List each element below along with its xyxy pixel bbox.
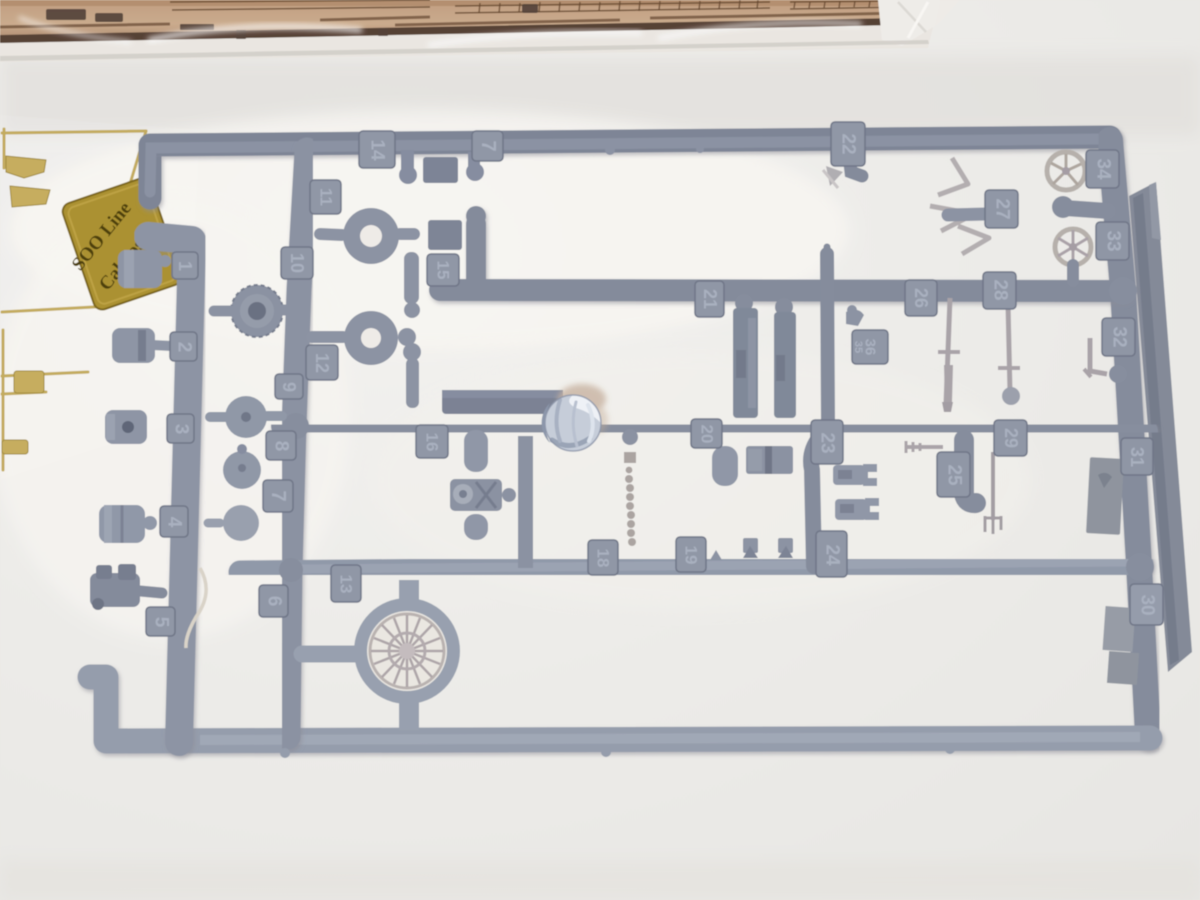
svg-text:12: 12 — [312, 353, 332, 373]
svg-text:30: 30 — [1137, 594, 1158, 615]
svg-text:2: 2 — [174, 342, 195, 353]
svg-text:18: 18 — [594, 549, 613, 568]
svg-text:26: 26 — [911, 288, 931, 308]
svg-text:11: 11 — [317, 188, 336, 206]
svg-text:33: 33 — [1103, 230, 1124, 251]
svg-text:3: 3 — [171, 424, 192, 435]
svg-text:23: 23 — [817, 432, 838, 453]
svg-text:35: 35 — [852, 341, 864, 353]
svg-text:7: 7 — [477, 140, 499, 151]
svg-text:15: 15 — [434, 261, 453, 280]
svg-text:21: 21 — [700, 289, 720, 309]
svg-text:32: 32 — [1109, 326, 1130, 347]
svg-text:16: 16 — [423, 433, 442, 452]
svg-text:4: 4 — [164, 517, 185, 528]
svg-text:7: 7 — [267, 490, 289, 501]
svg-text:19: 19 — [682, 546, 701, 565]
svg-text:1: 1 — [175, 261, 195, 271]
svg-text:28: 28 — [990, 279, 1011, 300]
svg-text:24: 24 — [822, 544, 843, 566]
svg-text:25: 25 — [944, 464, 965, 486]
svg-text:34: 34 — [1093, 158, 1114, 180]
svg-text:22: 22 — [838, 133, 859, 154]
svg-text:9: 9 — [279, 382, 299, 392]
svg-text:31: 31 — [1127, 447, 1147, 467]
svg-text:8: 8 — [271, 441, 292, 452]
svg-text:6: 6 — [264, 596, 285, 607]
svg-text:13: 13 — [337, 575, 356, 594]
svg-text:5: 5 — [151, 617, 172, 628]
svg-text:27: 27 — [992, 198, 1013, 219]
svg-text:10: 10 — [287, 253, 307, 273]
svg-text:29: 29 — [1001, 428, 1021, 448]
svg-text:20: 20 — [698, 425, 717, 444]
svg-text:14: 14 — [367, 139, 388, 161]
